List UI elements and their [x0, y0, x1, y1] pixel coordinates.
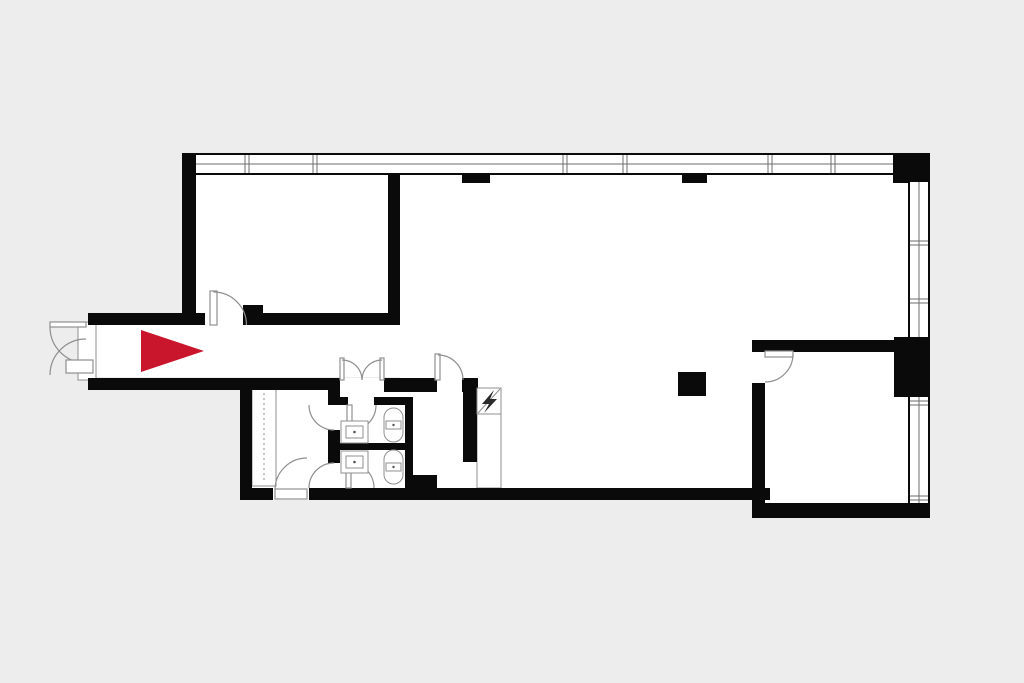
door-opening: [752, 352, 765, 383]
room-top-left-floor: [196, 175, 388, 313]
wall: [752, 340, 765, 352]
window-band-right-lower: [908, 397, 930, 503]
door-leaf: [435, 354, 440, 380]
wall: [243, 313, 400, 325]
wall: [328, 430, 340, 463]
corner-pillar: [893, 153, 930, 183]
window-band-right-upper: [908, 182, 930, 337]
wall: [309, 488, 770, 500]
electrical-panel: [477, 388, 501, 414]
door-leaf: [380, 358, 384, 380]
wall: [88, 378, 340, 390]
door-leaf: [340, 358, 344, 380]
wall: [384, 378, 437, 392]
door-leaf: [210, 291, 217, 325]
service-shaft: [477, 414, 501, 488]
window-band-top: [196, 153, 893, 175]
wall: [894, 337, 930, 397]
wall: [182, 153, 196, 313]
toilet-icon: [384, 408, 403, 442]
door-leaf: [275, 489, 307, 499]
sink-icon: [341, 451, 368, 473]
wall: [405, 475, 437, 490]
wall: [240, 378, 252, 500]
entrance-corridor-floor: [88, 325, 408, 377]
wall: [328, 392, 340, 405]
room-bottom-right-floor: [757, 345, 908, 503]
wall: [88, 313, 205, 325]
door-opening: [326, 405, 342, 430]
structural-column: [678, 372, 706, 396]
wall: [752, 503, 930, 518]
door-leaf: [765, 351, 793, 357]
door-opening: [326, 463, 342, 488]
door-leaf: [66, 360, 93, 373]
door-opening: [437, 378, 462, 392]
sink-icon: [341, 421, 368, 443]
wall: [752, 340, 894, 352]
wall: [388, 153, 400, 325]
wall: [328, 378, 340, 392]
floor-plan-canvas: [0, 0, 1024, 683]
wall: [328, 488, 340, 500]
door-leaf: [50, 322, 86, 327]
wall: [340, 443, 405, 450]
wall: [752, 383, 765, 503]
toilet-icon: [384, 450, 403, 484]
wall: [240, 488, 273, 500]
wall: [463, 378, 477, 462]
